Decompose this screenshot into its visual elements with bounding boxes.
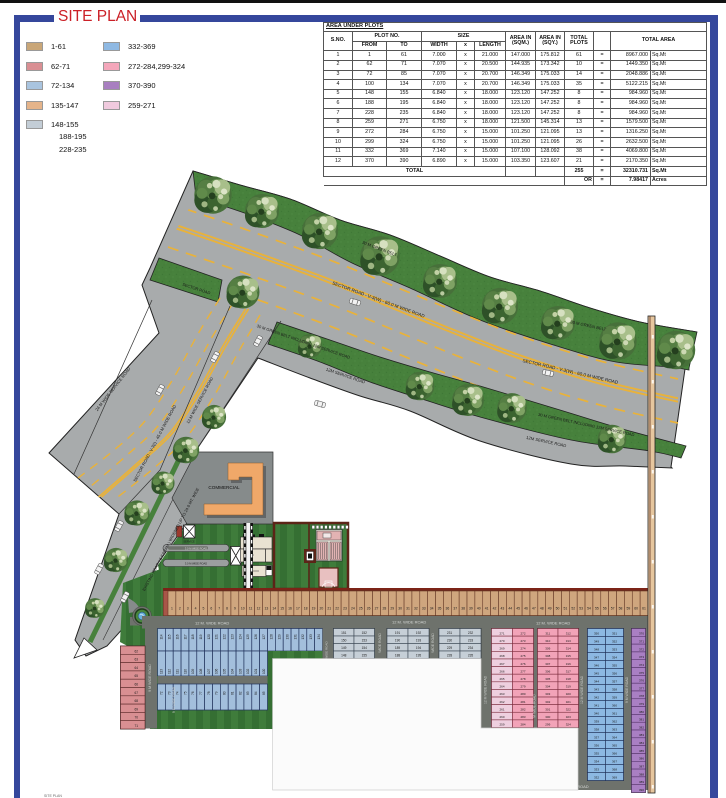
svg-text:53: 53 — [579, 607, 583, 611]
svg-text:264: 264 — [499, 685, 504, 689]
svg-text:357: 357 — [612, 680, 617, 684]
svg-text:74: 74 — [175, 691, 179, 695]
svg-text:44: 44 — [508, 607, 512, 611]
svg-text:54: 54 — [587, 607, 591, 611]
svg-text:41: 41 — [485, 607, 489, 611]
svg-text:85: 85 — [262, 691, 266, 695]
svg-text:149: 149 — [341, 646, 347, 650]
svg-text:134: 134 — [317, 634, 321, 640]
svg-text:389: 389 — [639, 780, 644, 784]
svg-text:65: 65 — [134, 674, 138, 678]
svg-text:21: 21 — [327, 607, 331, 611]
svg-text:360: 360 — [612, 704, 617, 708]
svg-text:366: 366 — [612, 752, 617, 756]
svg-text:58: 58 — [619, 607, 623, 611]
svg-text:1: 1 — [171, 607, 173, 611]
svg-text:123: 123 — [230, 634, 234, 640]
svg-text:22: 22 — [335, 607, 339, 611]
svg-text:12 M. WIDE ROAD: 12 M. WIDE ROAD — [195, 621, 229, 626]
svg-text:192: 192 — [416, 631, 422, 635]
svg-text:379: 379 — [639, 702, 644, 706]
svg-text:120: 120 — [207, 634, 211, 640]
svg-text:228: 228 — [447, 654, 453, 658]
svg-text:347: 347 — [594, 656, 599, 660]
svg-text:46: 46 — [524, 607, 528, 611]
svg-text:283: 283 — [520, 715, 525, 719]
svg-text:267: 267 — [499, 662, 504, 666]
svg-text:12 M WIDE ROAD: 12 M WIDE ROAD — [484, 675, 488, 704]
svg-text:378: 378 — [639, 694, 644, 698]
svg-text:WIDE ROAD: WIDE ROAD — [378, 633, 382, 653]
svg-text:38: 38 — [461, 607, 465, 611]
svg-text:352: 352 — [612, 640, 617, 644]
svg-text:188: 188 — [395, 654, 401, 658]
svg-text:SERVICE: SERVICE — [183, 540, 195, 544]
svg-text:351: 351 — [612, 632, 617, 636]
svg-text:153: 153 — [362, 639, 368, 643]
svg-text:334: 334 — [594, 760, 599, 764]
svg-text:280: 280 — [520, 692, 525, 696]
svg-text:125: 125 — [246, 634, 250, 640]
svg-text:361: 361 — [612, 712, 617, 716]
svg-text:16: 16 — [288, 607, 292, 611]
svg-text:69: 69 — [134, 707, 138, 711]
svg-text:148: 148 — [341, 654, 347, 658]
svg-text:385: 385 — [639, 749, 644, 753]
svg-text:324: 324 — [566, 723, 571, 727]
svg-text:101: 101 — [254, 668, 258, 674]
svg-text:301: 301 — [545, 707, 550, 711]
svg-text:106: 106 — [215, 668, 219, 674]
svg-text:23: 23 — [343, 607, 347, 611]
svg-text:317: 317 — [566, 669, 571, 673]
svg-text:270: 270 — [499, 639, 504, 643]
svg-text:59: 59 — [626, 607, 630, 611]
svg-text:9 M WIDE ROAD: 9 M WIDE ROAD — [148, 664, 152, 692]
svg-text:49: 49 — [548, 607, 552, 611]
svg-text:75: 75 — [183, 691, 187, 695]
svg-text:356: 356 — [612, 672, 617, 676]
svg-text:311: 311 — [545, 631, 550, 635]
svg-text:355: 355 — [612, 664, 617, 668]
svg-text:363: 363 — [612, 728, 617, 732]
svg-text:277: 277 — [520, 669, 525, 673]
svg-text:28: 28 — [382, 607, 386, 611]
svg-text:105: 105 — [223, 668, 227, 674]
svg-text:339: 339 — [594, 720, 599, 724]
svg-text:127: 127 — [262, 634, 266, 640]
svg-text:193: 193 — [416, 639, 422, 643]
svg-text:259: 259 — [499, 723, 504, 727]
svg-text:78: 78 — [207, 691, 211, 695]
svg-text:194: 194 — [416, 646, 422, 650]
svg-text:2: 2 — [179, 607, 181, 611]
svg-text:11: 11 — [249, 607, 253, 611]
svg-text:113: 113 — [160, 669, 164, 674]
svg-text:271: 271 — [499, 631, 504, 635]
svg-text:29: 29 — [390, 607, 394, 611]
svg-text:300: 300 — [545, 715, 550, 719]
svg-text:323: 323 — [566, 715, 571, 719]
svg-text:369: 369 — [612, 776, 617, 780]
svg-text:24: 24 — [351, 607, 355, 611]
svg-text:63: 63 — [134, 658, 138, 662]
svg-text:266: 266 — [499, 669, 504, 673]
svg-text:310: 310 — [545, 639, 550, 643]
svg-text:SITE PLAN: SITE PLAN — [44, 794, 62, 798]
svg-text:31: 31 — [406, 607, 410, 611]
svg-text:57: 57 — [611, 607, 615, 611]
svg-text:273: 273 — [520, 639, 525, 643]
svg-text:318: 318 — [566, 677, 571, 681]
svg-text:362: 362 — [612, 720, 617, 724]
svg-text:348: 348 — [594, 648, 599, 652]
svg-text:372: 372 — [639, 647, 644, 651]
svg-text:274: 274 — [520, 647, 525, 651]
svg-text:234: 234 — [468, 646, 474, 650]
svg-text:121: 121 — [215, 634, 219, 640]
svg-text:320: 320 — [566, 692, 571, 696]
svg-text:263: 263 — [499, 692, 504, 696]
svg-text:77: 77 — [199, 691, 203, 695]
svg-text:12 M. WIDE ROAD: 12 M. WIDE ROAD — [392, 620, 426, 625]
svg-text:6: 6 — [210, 607, 212, 611]
svg-text:337: 337 — [594, 736, 599, 740]
svg-text:107: 107 — [207, 668, 211, 674]
svg-text:383: 383 — [639, 733, 644, 737]
svg-text:307: 307 — [545, 662, 550, 666]
svg-text:17: 17 — [296, 607, 300, 611]
svg-text:350: 350 — [594, 632, 599, 636]
svg-text:42: 42 — [493, 607, 497, 611]
svg-text:124: 124 — [238, 634, 242, 640]
svg-text:34: 34 — [430, 607, 434, 611]
svg-text:233: 233 — [468, 639, 474, 643]
svg-text:30: 30 — [398, 607, 402, 611]
svg-text:279: 279 — [520, 685, 525, 689]
svg-text:83: 83 — [246, 691, 250, 695]
svg-text:308: 308 — [545, 654, 550, 658]
svg-text:80: 80 — [223, 691, 227, 695]
svg-text:195: 195 — [416, 654, 422, 658]
svg-text:343: 343 — [594, 688, 599, 692]
svg-text:47: 47 — [532, 607, 536, 611]
svg-text:359: 359 — [612, 696, 617, 700]
svg-text:15: 15 — [280, 607, 284, 611]
svg-text:354: 354 — [612, 656, 617, 660]
svg-text:52: 52 — [571, 607, 575, 611]
svg-text:155: 155 — [362, 654, 368, 658]
svg-text:117: 117 — [183, 634, 187, 639]
svg-text:114: 114 — [160, 634, 164, 639]
svg-text:WIDE ROAD: WIDE ROAD — [431, 633, 435, 653]
svg-text:189: 189 — [395, 646, 401, 650]
svg-text:345: 345 — [594, 672, 599, 676]
svg-text:130: 130 — [285, 634, 289, 640]
svg-text:20: 20 — [320, 607, 324, 611]
svg-text:333: 333 — [594, 768, 599, 772]
svg-text:126: 126 — [254, 634, 258, 640]
svg-text:122: 122 — [223, 634, 227, 640]
svg-text:82: 82 — [238, 691, 242, 695]
svg-text:64: 64 — [134, 666, 138, 670]
svg-text:304: 304 — [545, 685, 550, 689]
svg-text:M WIDE ROAD: M WIDE ROAD — [533, 694, 537, 718]
svg-text:346: 346 — [594, 664, 599, 668]
svg-text:309: 309 — [545, 647, 550, 651]
svg-text:9: 9 — [234, 607, 236, 611]
svg-text:36: 36 — [445, 607, 449, 611]
svg-text:12 M. WIDE ROAD: 12 M. WIDE ROAD — [536, 621, 570, 626]
svg-text:278: 278 — [520, 677, 525, 681]
svg-text:151: 151 — [341, 631, 347, 635]
svg-text:388: 388 — [639, 772, 644, 776]
svg-text:40: 40 — [477, 607, 481, 611]
svg-text:229: 229 — [447, 646, 453, 650]
svg-text:284: 284 — [520, 723, 525, 727]
svg-text:104: 104 — [230, 668, 234, 674]
svg-text:60: 60 — [634, 607, 638, 611]
svg-text:272: 272 — [520, 631, 525, 635]
svg-text:316: 316 — [566, 662, 571, 666]
svg-text:56: 56 — [603, 607, 607, 611]
svg-text:190: 190 — [395, 639, 401, 643]
svg-text:32: 32 — [414, 607, 418, 611]
svg-text:14: 14 — [272, 607, 276, 611]
svg-text:71: 71 — [134, 724, 138, 728]
svg-text:386: 386 — [639, 757, 644, 761]
svg-text:39: 39 — [469, 607, 473, 611]
svg-text:319: 319 — [566, 685, 571, 689]
svg-text:332: 332 — [594, 776, 599, 780]
svg-text:305: 305 — [545, 677, 550, 681]
svg-text:342: 342 — [594, 696, 599, 700]
svg-text:377: 377 — [639, 686, 644, 690]
svg-text:315: 315 — [566, 654, 571, 658]
svg-text:COMMERCIAL: COMMERCIAL — [208, 485, 240, 490]
svg-text:231: 231 — [447, 631, 453, 635]
svg-text:364: 364 — [612, 736, 617, 740]
svg-text:9 M WIDE ROAD: 9 M WIDE ROAD — [625, 676, 629, 703]
svg-text:12: 12 — [257, 607, 261, 611]
svg-text:131: 131 — [293, 634, 297, 640]
svg-text:108: 108 — [199, 668, 203, 674]
svg-text:27: 27 — [375, 607, 379, 611]
svg-text:384: 384 — [639, 741, 644, 745]
svg-text:66: 66 — [134, 683, 138, 687]
svg-text:282: 282 — [520, 707, 525, 711]
svg-text:349: 349 — [594, 640, 599, 644]
svg-text:5: 5 — [202, 607, 204, 611]
svg-text:115: 115 — [168, 634, 172, 639]
svg-text:33: 33 — [422, 607, 426, 611]
svg-text:WIDE ROAD: WIDE ROAD — [325, 641, 329, 659]
svg-text:19: 19 — [312, 607, 316, 611]
svg-text:322: 322 — [566, 707, 571, 711]
svg-text:13: 13 — [264, 607, 268, 611]
svg-text:100: 100 — [262, 668, 266, 674]
svg-text:10: 10 — [241, 607, 245, 611]
svg-text:73: 73 — [168, 691, 172, 695]
svg-text:382: 382 — [639, 725, 644, 729]
svg-text:55: 55 — [595, 607, 599, 611]
svg-text:25: 25 — [359, 607, 363, 611]
svg-text:299: 299 — [545, 723, 550, 727]
svg-text:260: 260 — [499, 715, 504, 719]
svg-text:365: 365 — [612, 744, 617, 748]
svg-text:18: 18 — [304, 607, 308, 611]
svg-text:368: 368 — [612, 768, 617, 772]
svg-text:111: 111 — [175, 669, 179, 674]
svg-text:50: 50 — [556, 607, 560, 611]
svg-text:381: 381 — [639, 718, 644, 722]
svg-text:81: 81 — [230, 691, 234, 695]
svg-text:8: 8 — [226, 607, 228, 611]
svg-text:70: 70 — [134, 716, 138, 720]
svg-text:303: 303 — [545, 692, 550, 696]
svg-text:321: 321 — [566, 700, 571, 704]
svg-text:370: 370 — [639, 632, 644, 636]
svg-text:62: 62 — [134, 649, 138, 653]
svg-text:37: 37 — [453, 607, 457, 611]
svg-text:3: 3 — [187, 607, 189, 611]
svg-text:9 M WIDE ROAD: 9 M WIDE ROAD — [172, 686, 176, 713]
svg-text:390: 390 — [639, 788, 644, 792]
svg-text:132: 132 — [301, 634, 305, 640]
svg-text:133: 133 — [309, 634, 313, 640]
svg-text:152: 152 — [362, 631, 368, 635]
svg-text:7: 7 — [218, 607, 220, 611]
svg-text:109: 109 — [191, 668, 195, 674]
svg-text:67: 67 — [134, 691, 138, 695]
svg-text:269: 269 — [499, 647, 504, 651]
svg-text:380: 380 — [639, 710, 644, 714]
svg-text:276: 276 — [520, 662, 525, 666]
svg-text:26: 26 — [367, 607, 371, 611]
svg-text:340: 340 — [594, 712, 599, 716]
svg-text:35: 35 — [438, 607, 442, 611]
svg-text:314: 314 — [566, 647, 571, 651]
svg-text:261: 261 — [499, 707, 504, 711]
svg-text:118: 118 — [191, 634, 195, 639]
svg-text:313: 313 — [566, 639, 571, 643]
svg-text:48: 48 — [540, 607, 544, 611]
svg-text:265: 265 — [499, 677, 504, 681]
svg-text:281: 281 — [520, 700, 525, 704]
svg-text:51: 51 — [563, 607, 567, 611]
svg-text:230: 230 — [447, 639, 453, 643]
svg-text:374: 374 — [639, 663, 644, 667]
svg-text:119: 119 — [199, 634, 203, 639]
svg-text:275: 275 — [520, 654, 525, 658]
svg-text:373: 373 — [639, 655, 644, 659]
svg-text:306: 306 — [545, 669, 550, 673]
svg-text:12 M WIDE ROAD: 12 M WIDE ROAD — [580, 675, 584, 704]
svg-text:353: 353 — [612, 648, 617, 652]
svg-text:336: 336 — [594, 744, 599, 748]
svg-text:344: 344 — [594, 680, 599, 684]
svg-text:376: 376 — [639, 679, 644, 683]
svg-text:341: 341 — [594, 704, 599, 708]
svg-text:4: 4 — [195, 607, 197, 611]
svg-text:150: 150 — [341, 639, 347, 643]
svg-text:110: 110 — [183, 669, 187, 674]
svg-text:61: 61 — [642, 607, 646, 611]
svg-text:116: 116 — [175, 634, 179, 639]
svg-text:76: 76 — [191, 691, 195, 695]
svg-text:338: 338 — [594, 728, 599, 732]
svg-text:68: 68 — [134, 699, 138, 703]
svg-text:262: 262 — [499, 700, 504, 704]
svg-text:129: 129 — [278, 634, 282, 640]
svg-text:79: 79 — [215, 691, 219, 695]
svg-text:335: 335 — [594, 752, 599, 756]
svg-text:312: 312 — [566, 631, 571, 635]
svg-text:3.0 M WIDE ROAD: 3.0 M WIDE ROAD — [185, 562, 207, 566]
svg-text:43: 43 — [501, 607, 505, 611]
svg-text:232: 232 — [468, 631, 474, 635]
svg-text:358: 358 — [612, 688, 617, 692]
svg-text:367: 367 — [612, 760, 617, 764]
svg-text:235: 235 — [468, 654, 474, 658]
svg-text:375: 375 — [639, 671, 644, 675]
svg-text:72: 72 — [160, 691, 164, 695]
svg-text:102: 102 — [246, 668, 250, 674]
svg-text:268: 268 — [499, 654, 504, 658]
svg-text:154: 154 — [362, 646, 368, 650]
svg-text:387: 387 — [639, 764, 644, 768]
svg-text:45: 45 — [516, 607, 520, 611]
svg-text:191: 191 — [395, 631, 401, 635]
svg-text:84: 84 — [254, 691, 258, 695]
svg-text:128: 128 — [270, 634, 274, 640]
svg-text:302: 302 — [545, 700, 550, 704]
svg-text:103: 103 — [238, 668, 242, 674]
svg-text:112: 112 — [168, 669, 172, 674]
svg-text:3.0 M WIDE ROAD: 3.0 M WIDE ROAD — [185, 547, 207, 551]
svg-text:371: 371 — [639, 640, 644, 644]
